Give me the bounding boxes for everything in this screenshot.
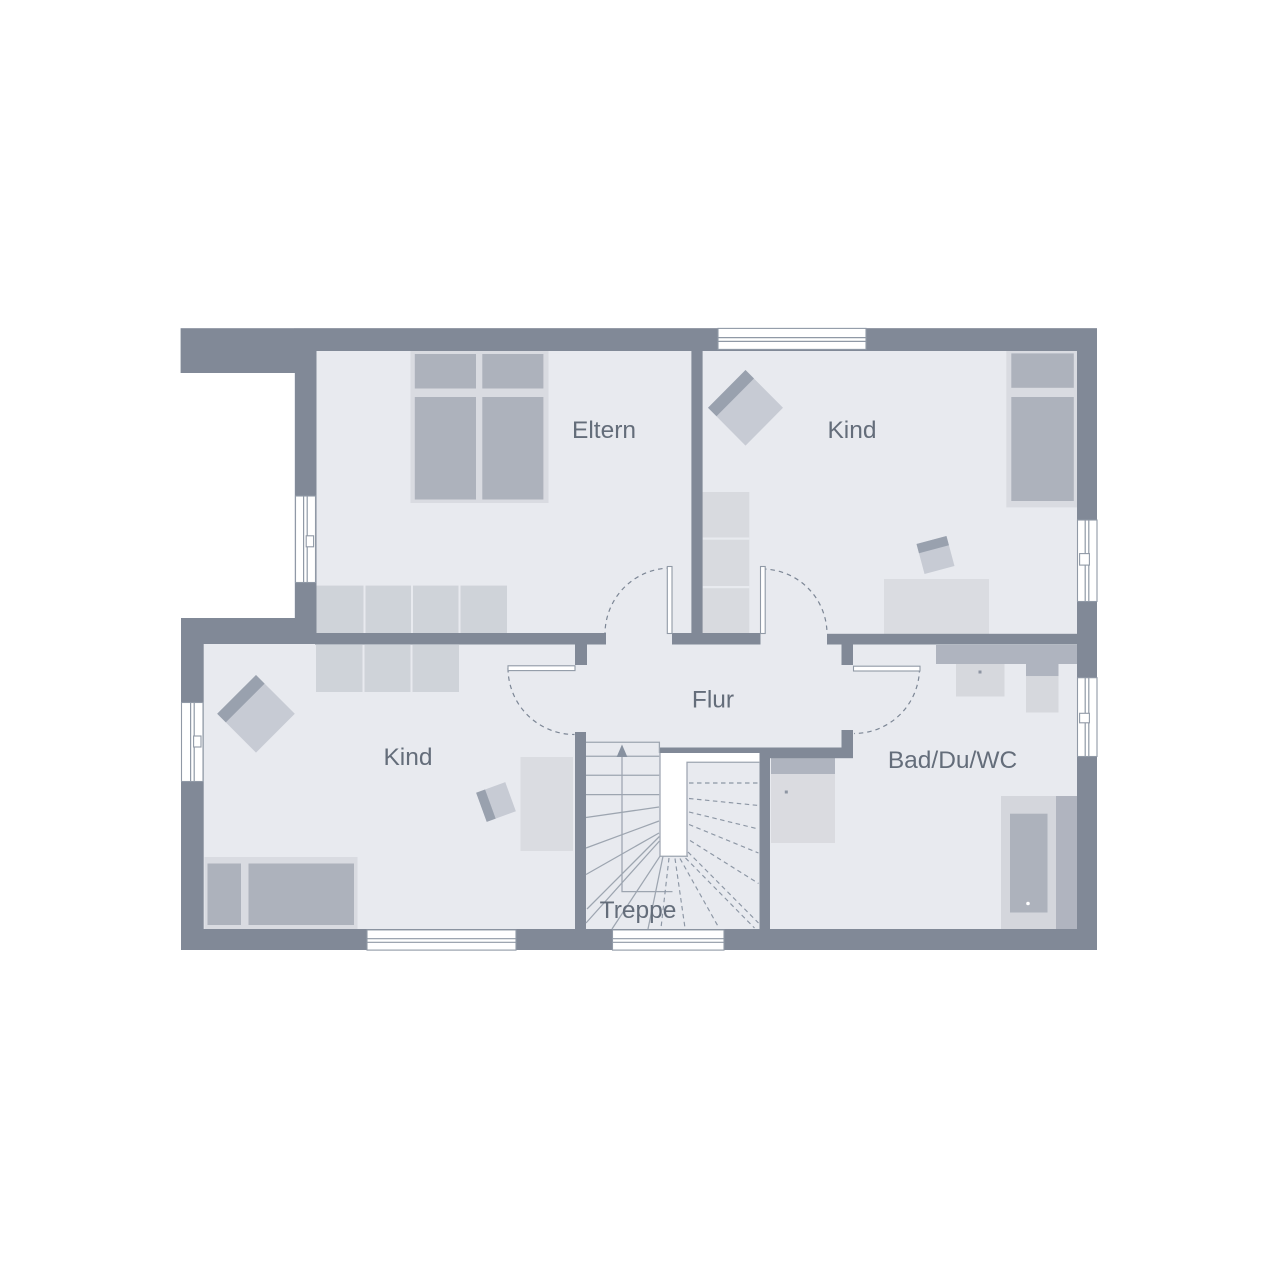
- svg-text:Kind: Kind: [827, 417, 876, 444]
- svg-text:Bad/Du/WC: Bad/Du/WC: [888, 747, 1017, 774]
- svg-text:Treppe: Treppe: [600, 897, 677, 924]
- svg-text:Kind: Kind: [383, 744, 432, 771]
- svg-text:Flur: Flur: [692, 687, 734, 714]
- svg-text:Eltern: Eltern: [572, 417, 636, 444]
